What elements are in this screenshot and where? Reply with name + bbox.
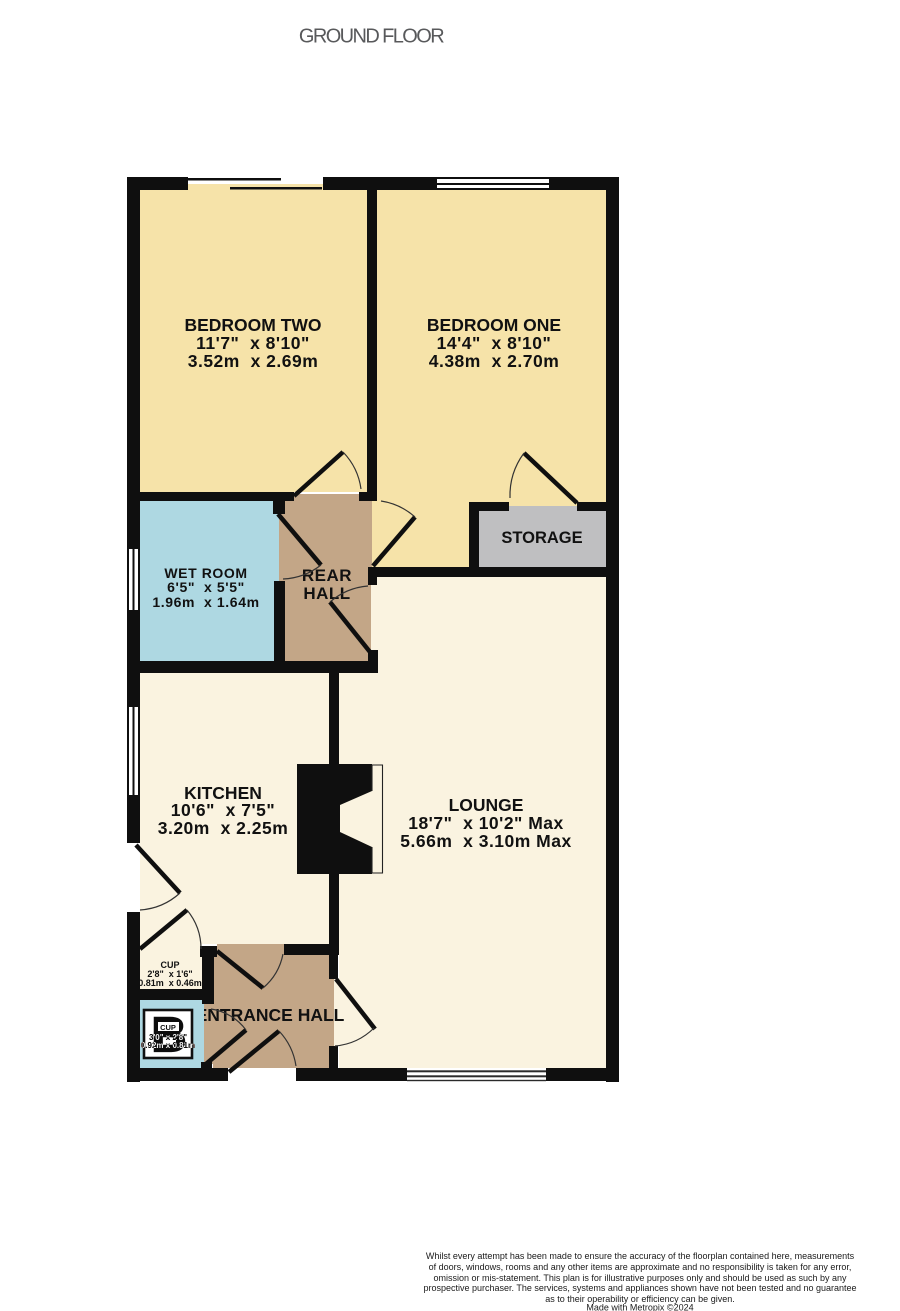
svg-text:STORAGE: STORAGE xyxy=(501,529,582,547)
svg-text:of doors, windows, rooms and a: of doors, windows, rooms and any other i… xyxy=(429,1262,852,1272)
svg-text:3.52m x 2.69m: 3.52m x 2.69m xyxy=(188,351,319,371)
svg-text:CUP: CUP xyxy=(160,1023,176,1032)
svg-text:11'7" x 8'10": 11'7" x 8'10" xyxy=(196,333,310,353)
svg-text:GROUND FLOOR: GROUND FLOOR xyxy=(299,26,444,48)
svg-text:1.96m x 1.64m: 1.96m x 1.64m xyxy=(152,594,259,610)
svg-text:14'4" x 8'10": 14'4" x 8'10" xyxy=(437,333,552,353)
svg-text:5.66m x 3.10m Max: 5.66m x 3.10m Max xyxy=(400,831,571,851)
svg-text:0.92m x 0.81m: 0.92m x 0.81m xyxy=(141,1041,195,1050)
svg-text:6'5" x 5'5": 6'5" x 5'5" xyxy=(167,579,245,595)
svg-text:LOUNGE: LOUNGE xyxy=(449,795,524,815)
svg-text:ENTRANCE HALL: ENTRANCE HALL xyxy=(196,1005,345,1025)
svg-text:BEDROOM TWO: BEDROOM TWO xyxy=(184,315,321,335)
svg-text:3.20m x 2.25m: 3.20m x 2.25m xyxy=(158,818,289,838)
svg-text:prospective purchaser. The ser: prospective purchaser. The services, sys… xyxy=(423,1283,856,1293)
svg-text:REAR: REAR xyxy=(302,566,352,585)
svg-text:Made with Metropix ©2024: Made with Metropix ©2024 xyxy=(586,1303,693,1311)
svg-text:omission or mis-statement. Thi: omission or mis-statement. This plan is … xyxy=(433,1273,847,1283)
svg-text:Whilst every attempt has been: Whilst every attempt has been made to en… xyxy=(426,1251,855,1261)
svg-text:BEDROOM ONE: BEDROOM ONE xyxy=(427,315,561,335)
svg-text:4.38m x 2.70m: 4.38m x 2.70m xyxy=(429,351,560,371)
svg-text:18'7" x 10'2" Max: 18'7" x 10'2" Max xyxy=(408,813,564,833)
svg-text:0.81m x 0.46m: 0.81m x 0.46m xyxy=(138,978,202,988)
svg-text:HALL: HALL xyxy=(303,584,350,603)
svg-text:10'6" x 7'5": 10'6" x 7'5" xyxy=(171,800,275,820)
